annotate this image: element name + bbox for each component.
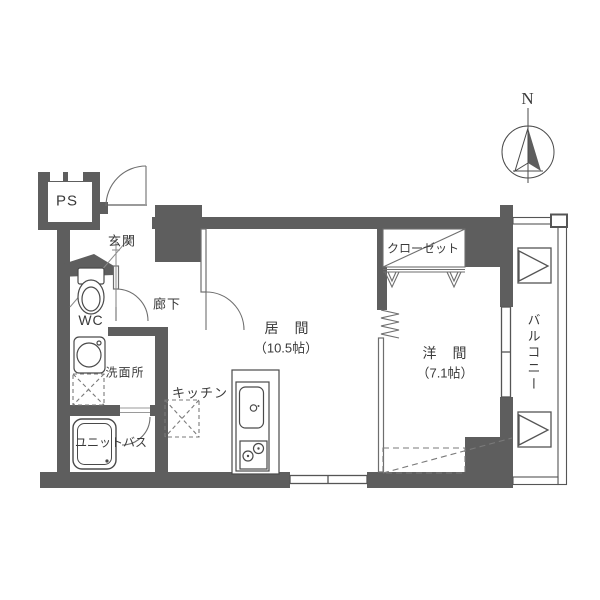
room-label-balcony: バルコニー [524,313,543,393]
room-label-hallway: 廊下 [153,294,181,313]
balcony-window [502,307,511,397]
room-label-western: 洋 間 [423,343,468,363]
room-label-ps: PS [56,193,78,210]
floor-plan-drawing [0,0,600,600]
room-label-genkan: 玄関 [108,231,136,250]
kitchen-counter [232,370,279,474]
entrance-door-swing [106,166,147,206]
room-size-western: （7.1帖） [416,363,473,382]
room-label-unit-bath: ユニットバス [75,434,147,451]
room-label-washroom: 洗面所 [105,364,144,381]
closet-drawing [383,229,465,287]
south-window [290,476,367,484]
compass-north-label: N [521,89,534,109]
closet-hanger-icon [385,272,461,287]
kitchen-sink-icon [240,387,264,428]
room-label-living: 居 間 [265,318,310,338]
accordion-door [381,310,399,338]
toilet-icon [78,268,104,314]
living-door-swing [206,292,244,330]
balcony-hatch-icon [518,248,551,283]
washer-space-icon [73,374,104,405]
refrigerator-space-icon [165,400,199,437]
floor-plan: N PS 玄関 WC 廊下 洗面所 ユニットバス キッチン 居 間 （10.5帖… [0,0,600,600]
stove-icon [240,441,267,469]
room-size-living: （10.5帖） [254,338,318,357]
room-label-kitchen: キッチン [172,383,228,402]
room-label-closet: クローゼット [387,240,459,257]
compass-north-icon [502,108,554,183]
washbasin-icon [74,337,105,373]
room-label-wc: WC [78,312,103,328]
balcony-hatch-icon [518,412,551,447]
wc-door-swing [116,289,148,321]
